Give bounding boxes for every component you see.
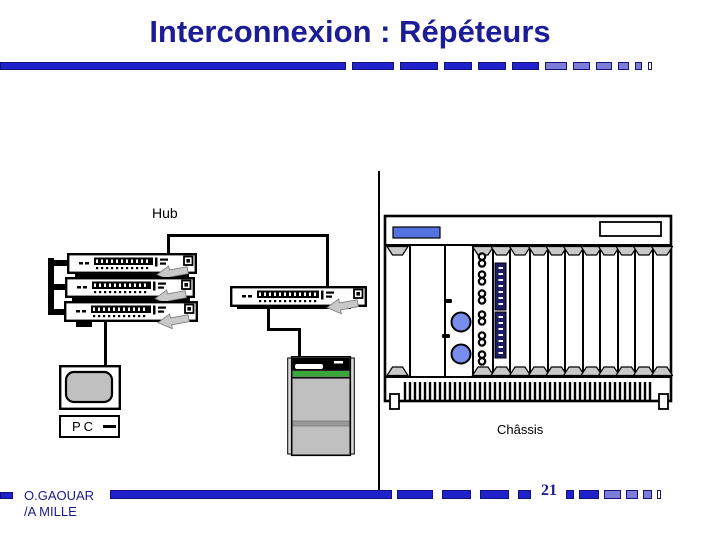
bar-segment (545, 62, 567, 70)
hub-lower-tick (113, 315, 115, 317)
chassis-switch-mark (444, 299, 452, 303)
hub-lower-tick (124, 291, 126, 293)
hub-port-tick (138, 308, 140, 312)
hub-port-tick (94, 284, 96, 288)
stack-bracket-arm-1 (48, 260, 68, 266)
hub-lower-tick (116, 267, 118, 269)
server-tower (287, 356, 355, 458)
hub-port-tick (116, 260, 118, 264)
hub-lower-tick (126, 267, 128, 269)
hub-end-port-pin (356, 292, 360, 296)
connector-ring (479, 297, 485, 303)
hub-port-tick (284, 293, 286, 297)
hub-port-tick (99, 284, 101, 288)
hub-lower-tick (314, 300, 316, 302)
bar-segment (397, 490, 433, 499)
connector-ring (479, 260, 485, 266)
hub-lower-tick (101, 267, 103, 269)
page-title: Interconnexion : Répéteurs (0, 14, 700, 50)
hub-port-tick (101, 260, 103, 264)
bar-segment (518, 490, 531, 499)
dip-tick (499, 297, 504, 299)
hub-label: Hub (152, 205, 178, 221)
hub-port-tick (143, 308, 145, 312)
hub-end-port-pin (184, 283, 188, 287)
dip-tick (499, 267, 504, 269)
hub-lower-tick (139, 291, 141, 293)
hub-port-tick (309, 293, 311, 297)
bar-segment (512, 62, 539, 70)
hub-lower-tick (279, 300, 281, 302)
hub-lower-tick (114, 291, 116, 293)
connector-ring (479, 358, 485, 364)
hub-lower-tick (123, 315, 125, 317)
connector-ring (479, 253, 485, 259)
hub-port-tick (304, 293, 306, 297)
chassis-led-circle (452, 313, 471, 332)
bar-segment (635, 62, 642, 70)
hub-port-tick (104, 284, 106, 288)
hub-port-tick (123, 308, 125, 312)
bar-segment (442, 490, 471, 499)
bar-segment (626, 490, 638, 499)
hub-lower-tick (134, 291, 136, 293)
hub-lower-tick (304, 300, 306, 302)
hub-left-mark (76, 310, 80, 313)
bar-segment (573, 62, 590, 70)
hub-dash-mark (160, 263, 166, 265)
hub-lower-tick (111, 267, 113, 269)
hub-port-tick (108, 308, 110, 312)
hub-port-tick (118, 308, 120, 312)
dip-tick (499, 340, 504, 342)
dip-tick (499, 346, 504, 348)
wire-hub4-drop (326, 236, 329, 288)
hub-lower-tick (93, 315, 95, 317)
dip-tick (499, 303, 504, 305)
hub-port-tick (146, 260, 148, 264)
hub-port-tick (119, 284, 121, 288)
dip-tick (499, 334, 504, 336)
hub-left-mark (77, 286, 81, 289)
hub-lower-tick (141, 267, 143, 269)
hub-port-tick (259, 293, 261, 297)
presentation-slide: Interconnexion : Répéteurs Hub Serveur C… (0, 0, 720, 540)
dip-tick (499, 322, 504, 324)
pc-label: PC (72, 419, 96, 434)
bar-segment (604, 490, 621, 499)
hub-lower-tick (299, 300, 301, 302)
hub-port-tick (134, 284, 136, 288)
pc-dash-icon (103, 425, 116, 428)
hub-port-tick (103, 308, 105, 312)
hub-lower-tick (269, 300, 271, 302)
bar-segment (579, 490, 599, 499)
connector-ring (479, 339, 485, 345)
bar-segment (566, 490, 574, 499)
server-vent-dash (334, 361, 343, 364)
hub-end-port-pin (187, 307, 191, 311)
wire-hub4-to-server-h (267, 328, 301, 331)
hub-lower-tick (99, 291, 101, 293)
hub-port-tick (279, 293, 281, 297)
chassis-foot (390, 394, 399, 409)
hub-lower-tick (264, 300, 266, 302)
dip-tick (499, 273, 504, 275)
hub-lower-tick (144, 291, 146, 293)
bottom-decorative-bar-long (110, 490, 392, 499)
hub-lower-tick (131, 267, 133, 269)
connector-ring (479, 290, 485, 296)
hub-lower-tick (119, 291, 121, 293)
hub-lower-tick (109, 291, 111, 293)
wire-hub-top-horizontal (167, 234, 329, 237)
hub-left-mark (248, 295, 252, 298)
hub-lower-tick (96, 267, 98, 269)
hub-bracket-mark (321, 291, 324, 300)
hub-port-tick (269, 293, 271, 297)
hub-left-mark (83, 286, 87, 289)
hub-port-tick (131, 260, 133, 264)
hub-bracket-mark (155, 258, 158, 267)
chassis-switch-mark (442, 334, 450, 338)
hub-dash-mark (326, 296, 332, 298)
dip-tick (499, 352, 504, 354)
top-decorative-bar (0, 62, 652, 70)
hub-left-mark (85, 262, 89, 265)
hub-dash-mark (158, 307, 166, 309)
hub-lower-tick (146, 267, 148, 269)
hub-lower-tick (121, 267, 123, 269)
bar-segment (618, 62, 629, 70)
hub-lower-tick (133, 315, 135, 317)
hub-device-3 (64, 301, 204, 331)
hub-port-tick (129, 284, 131, 288)
hub-port-tick (289, 293, 291, 297)
bar-segment (400, 62, 438, 70)
hub-port-tick (106, 260, 108, 264)
hub-lower-tick (118, 315, 120, 317)
connector-ring (479, 271, 485, 277)
bar-long-segment (110, 490, 392, 499)
connector-ring (479, 318, 485, 324)
hub-lower-tick (309, 300, 311, 302)
hub-port-tick (314, 293, 316, 297)
hub-end-port-pin (186, 259, 190, 263)
footer-left-bar (0, 492, 13, 499)
hub-port-tick (93, 308, 95, 312)
hub-port-tick (121, 260, 123, 264)
bottom-bar-segments-left (397, 490, 531, 499)
hub-port-tick (126, 260, 128, 264)
dip-tick (499, 279, 504, 281)
hub-dash-mark (158, 311, 164, 313)
hub-lower-tick (108, 315, 110, 317)
server-green-stripe (293, 371, 350, 377)
bar-segment (478, 62, 506, 70)
hub-bracket-mark (153, 282, 156, 291)
hub-lower-tick (289, 300, 291, 302)
hub-port-tick (136, 260, 138, 264)
hub-port-tick (133, 308, 135, 312)
hub-lower-tick (259, 300, 261, 302)
hub-port-tick (264, 293, 266, 297)
bar-segment (480, 490, 509, 499)
hub-port-tick (111, 260, 113, 264)
connector-ring (479, 332, 485, 338)
hub-lower-tick (138, 315, 140, 317)
bar-segment (657, 490, 661, 499)
chassis-led-circle (452, 345, 471, 364)
hub-port-tick (98, 308, 100, 312)
hub-dash-mark (158, 283, 166, 285)
server-green-edge (293, 377, 350, 379)
vertical-divider-line (378, 171, 380, 492)
hub-lower-tick (129, 291, 131, 293)
pc-monitor (59, 365, 121, 410)
monitor-screen (66, 372, 112, 402)
server-logo-blob (295, 364, 323, 369)
pc-label-box: PC (59, 415, 120, 438)
bottom-bar-segments-right (566, 490, 661, 499)
hub-lower-tick (104, 291, 106, 293)
hub-lower-tick (294, 300, 296, 302)
hub-left-mark (82, 310, 86, 313)
chassis-foot (659, 394, 668, 409)
hub-lower-tick (143, 315, 145, 317)
hub-lower-tick (274, 300, 276, 302)
footer-author-line1: O.GAOUAR (24, 488, 94, 504)
hub-lower-tick (98, 315, 100, 317)
hub-lower-tick (94, 291, 96, 293)
connector-ring (479, 278, 485, 284)
hub-port-tick (299, 293, 301, 297)
dip-tick (499, 316, 504, 318)
hub-port-tick (141, 260, 143, 264)
hub-port-tick (96, 260, 98, 264)
server-mid-stripe (293, 421, 350, 426)
footer-author-line2: /A MILLE (24, 504, 94, 520)
footer-author: O.GAOUAR /A MILLE (24, 488, 94, 519)
hub-port-tick (139, 284, 141, 288)
connector-ring (479, 351, 485, 357)
hub-port-tick (128, 308, 130, 312)
hub-bracket-mark (153, 306, 156, 315)
hub-lower-tick (106, 267, 108, 269)
hub-lower-tick (103, 315, 105, 317)
hub-left-mark (79, 262, 83, 265)
dip-tick (499, 285, 504, 287)
hub-port-tick (109, 284, 111, 288)
hub-port-tick (144, 284, 146, 288)
bar-segment (596, 62, 612, 70)
hub-lower-tick (136, 267, 138, 269)
hub-device-4 (230, 286, 373, 316)
hub-lower-tick (128, 315, 130, 317)
page-number: 21 (541, 482, 557, 500)
chassis-display-white (600, 222, 661, 236)
hub-dash-mark (326, 292, 334, 294)
hub-port-tick (124, 284, 126, 288)
hub-port-tick (274, 293, 276, 297)
hub-lower-tick (284, 300, 286, 302)
hub-port-tick (294, 293, 296, 297)
bar-segment (648, 62, 652, 70)
bar-segment (352, 62, 394, 70)
hub-left-mark (242, 295, 246, 298)
dip-tick (499, 291, 504, 293)
hub-dash-mark (158, 287, 164, 289)
chassis-display-blue (393, 227, 440, 238)
bar-long-segment (0, 62, 346, 70)
chassis-rack (383, 214, 673, 412)
chassis-label: Châssis (497, 422, 543, 437)
hub-dash-mark (160, 259, 168, 261)
dip-tick (499, 328, 504, 330)
connector-ring (479, 311, 485, 317)
bar-segment (444, 62, 472, 70)
bar-segment (643, 490, 652, 499)
hub-port-tick (114, 284, 116, 288)
hub-port-tick (113, 308, 115, 312)
